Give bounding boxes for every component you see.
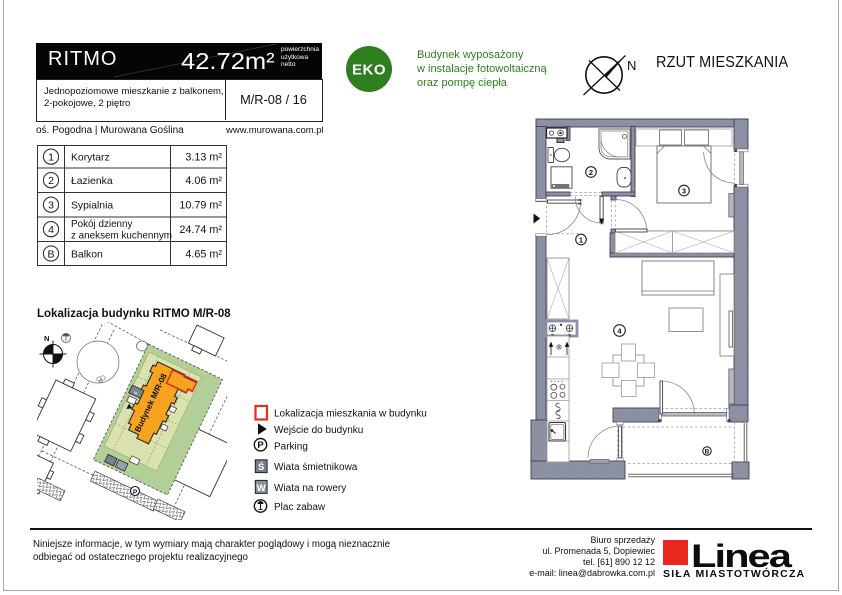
svg-text:4: 4 bbox=[48, 224, 54, 236]
svg-text:1: 1 bbox=[48, 152, 54, 164]
svg-text:N: N bbox=[44, 334, 49, 343]
svg-text:1: 1 bbox=[579, 235, 583, 244]
svg-text:z aneksem kuchennym: z aneksem kuchennym bbox=[71, 231, 172, 242]
svg-text:W: W bbox=[257, 483, 266, 494]
svg-text:2: 2 bbox=[589, 168, 593, 177]
svg-text:3: 3 bbox=[682, 186, 686, 195]
svg-text:Parking: Parking bbox=[274, 442, 308, 453]
svg-text:P: P bbox=[133, 489, 138, 496]
svg-text:Plac zabaw: Plac zabaw bbox=[274, 502, 326, 513]
svg-text:Wiata śmietnikowa: Wiata śmietnikowa bbox=[274, 462, 358, 473]
svg-text:EKO: EKO bbox=[352, 62, 386, 79]
svg-text:Sypialnia: Sypialnia bbox=[71, 201, 113, 212]
svg-text:Lokalizacja mieszkania w budyn: Lokalizacja mieszkania w budynku bbox=[274, 409, 427, 420]
svg-text:Łazienka: Łazienka bbox=[71, 176, 113, 187]
svg-text:B: B bbox=[47, 248, 54, 260]
svg-text:3.13 m²: 3.13 m² bbox=[185, 152, 222, 164]
svg-text:P: P bbox=[257, 440, 264, 451]
svg-text:2: 2 bbox=[48, 175, 54, 187]
svg-text:Wiata na rowery: Wiata na rowery bbox=[274, 483, 346, 494]
svg-text:Korytarz: Korytarz bbox=[71, 153, 110, 164]
svg-text:24.74 m²: 24.74 m² bbox=[179, 224, 222, 236]
svg-text:Wejście do budynku: Wejście do budynku bbox=[274, 425, 363, 436]
svg-text:10.79 m²: 10.79 m² bbox=[179, 200, 222, 212]
svg-text:3: 3 bbox=[48, 200, 54, 212]
svg-text:Pokój dzienny: Pokój dzienny bbox=[71, 219, 133, 230]
svg-text:Balkon: Balkon bbox=[71, 249, 103, 260]
svg-text:4.65 m²: 4.65 m² bbox=[185, 248, 222, 260]
svg-text:Ś: Ś bbox=[258, 461, 264, 473]
svg-text:B: B bbox=[705, 449, 710, 456]
svg-text:4.06 m²: 4.06 m² bbox=[185, 175, 222, 187]
